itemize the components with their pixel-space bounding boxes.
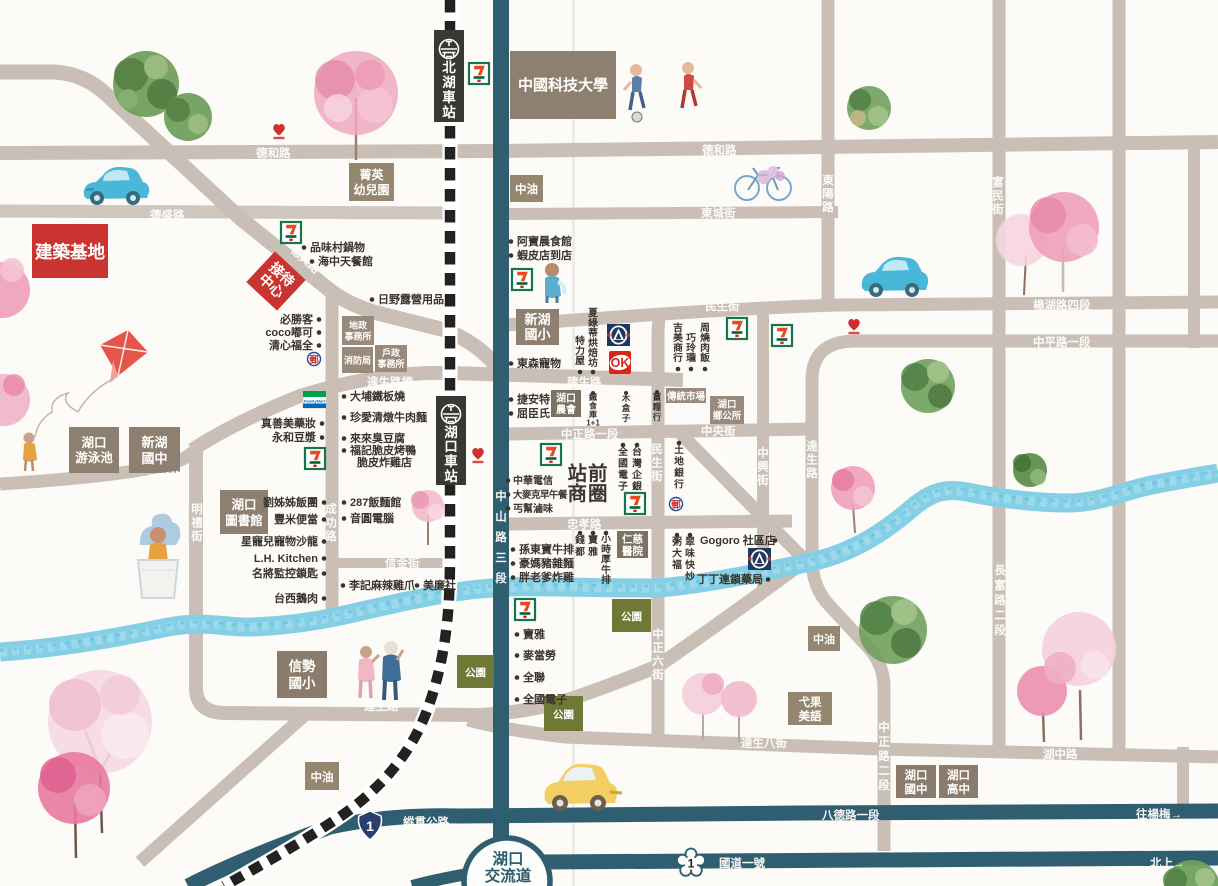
svg-text:胖老爹炸雞: 胖老爹炸雞: [519, 570, 574, 584]
svg-text:捷安特: 捷安特: [517, 392, 550, 406]
svg-text:地政: 地政: [349, 320, 368, 331]
svg-text:星寵兒寵物沙龍: 星寵兒寵物沙龍: [241, 534, 318, 548]
svg-text:中正六街: 中正六街: [651, 627, 664, 682]
svg-text:消防局: 消防局: [344, 355, 371, 366]
svg-text:鄉公所: 鄉公所: [713, 410, 742, 422]
svg-text:台西鵝肉: 台西鵝肉: [274, 591, 318, 605]
svg-text:品味村鍋物: 品味村鍋物: [310, 240, 365, 254]
svg-text:站: 站: [444, 468, 458, 484]
svg-text:土地銀行: 土地銀行: [673, 443, 684, 491]
svg-text:夏綠蒂烘焙坊: 夏綠蒂烘焙坊: [587, 307, 598, 369]
svg-text:特力屋: 特力屋: [575, 334, 585, 367]
svg-text:傳統市場: 傳統市場: [666, 391, 706, 403]
svg-text:珍愛清燉牛肉麵: 珍愛清燉牛肉麵: [350, 410, 427, 424]
svg-text:北上→: 北上→: [1150, 856, 1185, 870]
svg-text:事務所: 事務所: [377, 358, 404, 369]
svg-text:日野露營用品: 日野露營用品: [378, 292, 444, 306]
svg-text:清心福全: 清心福全: [269, 338, 314, 352]
svg-text:美廉社: 美廉社: [423, 578, 456, 592]
svg-text:大麥克早午餐: 大麥克早午餐: [513, 489, 568, 501]
svg-text:國小: 國小: [289, 676, 316, 691]
svg-text:車: 車: [442, 89, 456, 105]
svg-text:達生八街: 達生八街: [741, 736, 787, 750]
svg-text:弋果: 弋果: [799, 695, 822, 709]
svg-text:國中: 國中: [905, 782, 928, 796]
svg-text:湖口: 湖口: [556, 392, 576, 405]
svg-text:阿寶晨食館: 阿寶晨食館: [517, 234, 572, 248]
svg-text:湖口: 湖口: [905, 768, 928, 782]
svg-text:吉美商行: 吉美商行: [672, 321, 683, 364]
svg-text:真善美藥妝: 真善美藥妝: [261, 416, 316, 430]
svg-text:站前: 站前: [567, 462, 608, 485]
svg-text:中油: 中油: [813, 632, 835, 646]
svg-text:美語: 美語: [799, 709, 822, 723]
svg-text:信金街: 信金街: [385, 556, 420, 570]
svg-text:丁丁連鎖藥局: 丁丁連鎖藥局: [697, 572, 763, 586]
svg-text:台灣企銀: 台灣企銀: [631, 445, 642, 493]
svg-text:李記麻辣雞爪: 李記麻辣雞爪: [348, 578, 416, 592]
svg-text:往楊梅→: 往楊梅→: [1136, 807, 1182, 821]
svg-text:東城街: 東城街: [701, 206, 736, 220]
svg-text:富民街: 富民街: [991, 175, 1004, 216]
svg-text:楊湖路四段: 楊湖路四段: [1033, 298, 1091, 312]
svg-text:東森寵物: 東森寵物: [517, 356, 561, 370]
svg-text:劉姊姊飯團: 劉姊姊飯團: [263, 495, 318, 509]
svg-text:新湖: 新湖: [524, 312, 550, 327]
svg-text:永和豆漿: 永和豆漿: [271, 430, 316, 444]
svg-text:脆皮炸雞店: 脆皮炸雞店: [356, 455, 412, 469]
svg-text:建生路: 建生路: [567, 375, 602, 389]
svg-text:L.H. Kitchen: L.H. Kitchen: [254, 553, 318, 565]
svg-text:成功路: 成功路: [325, 502, 337, 543]
svg-text:公園: 公園: [553, 709, 574, 721]
svg-text:287飯麵館: 287飯麵館: [350, 495, 401, 509]
svg-text:木盒子: 木盒子: [621, 393, 631, 423]
svg-text:新湖: 新湖: [141, 435, 167, 450]
svg-text:信勢: 信勢: [289, 658, 316, 674]
svg-text:寶雅: 寶雅: [588, 533, 598, 558]
svg-text:建築基地: 建築基地: [35, 242, 105, 262]
svg-text:大埔鐵板燒: 大埔鐵板燒: [350, 389, 405, 403]
svg-text:中油: 中油: [311, 770, 334, 784]
svg-text:中正路一段: 中正路一段: [561, 427, 619, 441]
svg-text:湖口: 湖口: [231, 497, 256, 512]
svg-text:福記脆皮烤鴨: 福記脆皮烤鴨: [349, 443, 416, 457]
svg-text:湖口: 湖口: [947, 768, 970, 782]
svg-text:德盛路: 德盛路: [149, 208, 185, 222]
svg-text:豐米便當: 豐米便當: [274, 512, 318, 526]
svg-text:高中: 高中: [947, 782, 970, 796]
svg-text:幼兒園: 幼兒園: [353, 182, 389, 197]
svg-text:站: 站: [442, 104, 456, 120]
svg-text:翠味快炒: 翠味快炒: [684, 536, 695, 583]
svg-text:湖中路: 湖中路: [1043, 747, 1078, 761]
svg-text:國中: 國中: [141, 451, 167, 466]
svg-text:中平路一段: 中平路一段: [1033, 335, 1091, 349]
svg-text:中正路二段: 中正路二段: [878, 720, 890, 792]
svg-text:湖口: 湖口: [81, 435, 106, 450]
svg-text:明禮街: 明禮街: [190, 502, 203, 543]
svg-text:孫東寶牛排: 孫東寶牛排: [519, 542, 574, 556]
svg-text:全國電子: 全國電子: [522, 692, 567, 706]
svg-text:湖: 湖: [444, 425, 458, 440]
svg-text:薑糧行: 薑糧行: [652, 392, 662, 422]
svg-text:農會: 農會: [556, 403, 577, 416]
svg-text:游泳池: 游泳池: [75, 450, 113, 465]
svg-text:名將監控鎖匙: 名將監控鎖匙: [252, 566, 319, 580]
svg-text:來來臭豆腐: 來來臭豆腐: [350, 431, 405, 445]
svg-text:東陽路: 東陽路: [822, 173, 834, 214]
svg-text:coco嘟可: coco嘟可: [265, 325, 313, 339]
svg-text:口: 口: [444, 439, 458, 454]
svg-text:國小: 國小: [524, 327, 550, 342]
svg-text:忠孝路: 忠孝路: [567, 517, 602, 531]
svg-text:德和路: 德和路: [255, 146, 291, 160]
svg-text:公園: 公園: [465, 667, 486, 679]
svg-text:豪媽豬雜麵: 豪媽豬雜麵: [519, 556, 574, 570]
svg-text:公園: 公園: [621, 611, 642, 623]
svg-text:德和路: 德和路: [701, 143, 737, 157]
svg-text:錢都: 錢都: [574, 533, 585, 558]
svg-text:中華電信: 中華電信: [513, 474, 553, 487]
svg-text:圖書館: 圖書館: [225, 513, 263, 528]
svg-text:仁慈: 仁慈: [622, 533, 643, 546]
svg-text:中油: 中油: [515, 182, 538, 196]
svg-text:民生街: 民生街: [705, 299, 740, 313]
svg-text:小時厚牛排: 小時厚牛排: [601, 532, 611, 586]
svg-text:丐幫滷味: 丐幫滷味: [513, 502, 553, 515]
svg-text:蝦皮店到店: 蝦皮店到店: [517, 248, 572, 262]
svg-text:菁英: 菁英: [359, 167, 384, 182]
svg-text:戶政: 戶政: [382, 347, 401, 358]
svg-text:全聯: 全聯: [522, 670, 545, 684]
svg-text:北: 北: [442, 60, 456, 75]
svg-text:國道一號: 國道一號: [719, 856, 765, 870]
svg-text:中興街: 中興街: [756, 446, 769, 487]
svg-text:商圈: 商圈: [567, 482, 608, 505]
svg-text:巧玲瓏: 巧玲瓏: [686, 332, 696, 364]
svg-text:周燒肉飯: 周燒肉飯: [699, 322, 710, 364]
svg-text:寶雅: 寶雅: [523, 627, 545, 641]
svg-text:縱貫公路: 縱貫公路: [403, 815, 449, 829]
svg-text:1: 1: [366, 818, 374, 834]
svg-text:全國電子: 全國電子: [617, 445, 628, 493]
svg-text:達生路: 達生路: [806, 439, 818, 480]
svg-text:達生路: 達生路: [364, 699, 399, 713]
svg-text:屈臣氏: 屈臣氏: [517, 406, 550, 420]
svg-text:粥大福: 粥大福: [671, 535, 682, 571]
svg-text:民生街: 民生街: [650, 443, 663, 483]
svg-text:事務所: 事務所: [344, 331, 371, 342]
svg-text:海中天餐館: 海中天餐館: [318, 254, 373, 268]
svg-text:達生路橋: 達生路橋: [367, 375, 413, 389]
svg-text:音圓電腦: 音圓電腦: [350, 511, 394, 525]
svg-text:Gogoro 社區店: Gogoro 社區店: [700, 533, 776, 547]
svg-text:湖: 湖: [442, 75, 456, 90]
svg-text:八德路一段: 八德路一段: [821, 808, 880, 822]
svg-text:車: 車: [444, 453, 458, 469]
svg-text:1: 1: [688, 857, 695, 871]
svg-text:中國科技大學: 中國科技大學: [518, 76, 608, 94]
svg-text:湖口: 湖口: [492, 850, 523, 868]
svg-text:必勝客: 必勝客: [279, 312, 314, 326]
svg-text:OK: OK: [611, 356, 630, 370]
svg-text:長富路二段: 長富路二段: [994, 564, 1006, 637]
svg-text:湖口: 湖口: [717, 399, 736, 411]
svg-text:醫院: 醫院: [622, 545, 643, 558]
svg-text:中央街: 中央街: [701, 424, 736, 438]
svg-text:麥當勞: 麥當勞: [522, 648, 556, 662]
svg-text:交流道: 交流道: [485, 866, 532, 885]
